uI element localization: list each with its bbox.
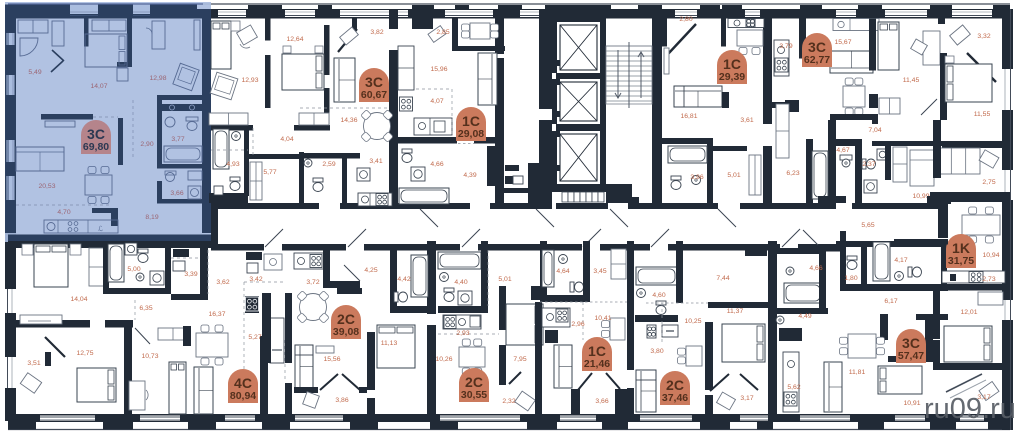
svg-text:4,40: 4,40 xyxy=(454,279,467,286)
svg-text:69,80: 69,80 xyxy=(83,141,109,153)
svg-text:1K: 1K xyxy=(952,240,970,256)
svg-text:4,70: 4,70 xyxy=(57,209,70,216)
svg-text:2,85: 2,85 xyxy=(436,29,449,36)
svg-text:5,49: 5,49 xyxy=(28,69,41,76)
svg-text:10,91: 10,91 xyxy=(903,400,920,407)
svg-text:39,08: 39,08 xyxy=(333,326,359,338)
svg-text:2C: 2C xyxy=(337,311,355,327)
svg-text:4,42: 4,42 xyxy=(397,276,410,283)
svg-text:7,44: 7,44 xyxy=(716,275,729,282)
svg-text:11,37: 11,37 xyxy=(727,308,744,315)
svg-text:3,32: 3,32 xyxy=(977,33,990,40)
svg-text:2,90: 2,90 xyxy=(140,141,153,148)
svg-text:12,75: 12,75 xyxy=(76,350,93,357)
svg-text:11,55: 11,55 xyxy=(974,111,991,118)
svg-text:4,93: 4,93 xyxy=(226,161,239,168)
svg-text:3,61: 3,61 xyxy=(740,117,753,124)
svg-text:3,79: 3,79 xyxy=(779,43,792,50)
svg-text:5,62: 5,62 xyxy=(787,384,800,391)
svg-text:29,39: 29,39 xyxy=(719,71,745,83)
svg-text:15,96: 15,96 xyxy=(430,66,447,73)
svg-text:10,25: 10,25 xyxy=(684,318,701,325)
svg-text:6,17: 6,17 xyxy=(884,298,897,305)
svg-text:1,80: 1,80 xyxy=(844,275,857,282)
svg-text:30,55: 30,55 xyxy=(461,389,487,401)
svg-text:2,96: 2,96 xyxy=(571,321,584,328)
svg-text:31,75: 31,75 xyxy=(948,255,974,267)
svg-text:11,13: 11,13 xyxy=(381,340,398,347)
svg-text:3,96: 3,96 xyxy=(690,174,703,181)
svg-text:1C: 1C xyxy=(462,113,480,129)
svg-text:6,35: 6,35 xyxy=(139,305,152,312)
svg-text:5,01: 5,01 xyxy=(727,172,740,179)
svg-text:10,73: 10,73 xyxy=(141,353,158,360)
svg-text:5,00: 5,00 xyxy=(127,266,140,273)
svg-text:2,75: 2,75 xyxy=(982,179,995,186)
svg-text:3,72: 3,72 xyxy=(306,279,319,286)
svg-text:3,42: 3,42 xyxy=(249,276,262,283)
svg-text:2,80: 2,80 xyxy=(679,16,692,23)
svg-text:15,67: 15,67 xyxy=(834,39,851,46)
svg-text:16,81: 16,81 xyxy=(680,113,697,120)
svg-text:5,01: 5,01 xyxy=(498,276,511,283)
svg-text:4,25: 4,25 xyxy=(364,267,377,274)
svg-text:3C: 3C xyxy=(808,39,826,55)
svg-text:10,41: 10,41 xyxy=(594,315,611,322)
svg-text:6,23: 6,23 xyxy=(786,170,799,177)
svg-text:57,47: 57,47 xyxy=(898,350,924,362)
svg-text:14,07: 14,07 xyxy=(90,83,107,90)
svg-text:4,17: 4,17 xyxy=(894,257,907,264)
svg-text:62,77: 62,77 xyxy=(804,54,830,66)
svg-text:8,19: 8,19 xyxy=(145,214,158,221)
svg-text:3,41: 3,41 xyxy=(369,158,382,165)
svg-text:29,08: 29,08 xyxy=(458,128,484,140)
svg-text:11,45: 11,45 xyxy=(903,77,920,84)
svg-text:4,49: 4,49 xyxy=(798,313,811,320)
svg-text:2C: 2C xyxy=(465,374,483,390)
svg-text:4,66: 4,66 xyxy=(430,161,443,168)
svg-text:11,81: 11,81 xyxy=(849,369,866,376)
svg-text:3,62: 3,62 xyxy=(216,279,229,286)
svg-text:2,73: 2,73 xyxy=(982,276,995,283)
svg-text:3,45: 3,45 xyxy=(593,268,606,275)
svg-text:80,94: 80,94 xyxy=(230,390,256,402)
svg-text:3,86: 3,86 xyxy=(335,397,348,404)
svg-text:1C: 1C xyxy=(723,56,741,72)
svg-text:7,95: 7,95 xyxy=(513,356,526,363)
svg-text:3C: 3C xyxy=(87,126,105,142)
svg-text:3C: 3C xyxy=(365,74,383,90)
svg-text:3,66: 3,66 xyxy=(595,398,608,405)
svg-text:2,59: 2,59 xyxy=(322,161,335,168)
svg-text:12,93: 12,93 xyxy=(241,77,258,84)
svg-text:16,37: 16,37 xyxy=(208,311,225,318)
svg-text:10,26: 10,26 xyxy=(435,356,452,363)
svg-text:3C: 3C xyxy=(902,335,920,351)
svg-text:3,66: 3,66 xyxy=(170,190,183,197)
svg-text:7,04: 7,04 xyxy=(868,127,881,134)
svg-text:37,46: 37,46 xyxy=(662,392,688,404)
svg-text:3,39: 3,39 xyxy=(184,271,197,278)
svg-text:4,39: 4,39 xyxy=(463,172,476,179)
svg-text:14,36: 14,36 xyxy=(340,117,357,124)
svg-text:4,67: 4,67 xyxy=(836,147,849,154)
svg-text:3,77: 3,77 xyxy=(171,136,184,143)
svg-text:4,66: 4,66 xyxy=(809,265,822,272)
svg-text:4,07: 4,07 xyxy=(430,98,443,105)
svg-text:3,17: 3,17 xyxy=(740,395,753,402)
svg-text:20,53: 20,53 xyxy=(38,183,55,190)
svg-text:5,65: 5,65 xyxy=(861,222,874,229)
svg-text:3,80: 3,80 xyxy=(650,348,663,355)
svg-text:15,56: 15,56 xyxy=(323,356,340,363)
svg-text:14,04: 14,04 xyxy=(70,296,87,303)
svg-text:5,77: 5,77 xyxy=(263,169,276,176)
svg-text:ru09.ru: ru09.ru xyxy=(924,393,1016,425)
svg-text:4C: 4C xyxy=(234,375,252,391)
svg-text:12,64: 12,64 xyxy=(286,36,303,43)
svg-text:5,27: 5,27 xyxy=(248,334,261,341)
svg-text:4,60: 4,60 xyxy=(652,292,665,299)
svg-text:10,94: 10,94 xyxy=(982,252,999,259)
svg-text:2,32: 2,32 xyxy=(502,398,515,405)
svg-text:4,04: 4,04 xyxy=(280,136,293,143)
svg-text:3,82: 3,82 xyxy=(370,29,383,36)
svg-text:2,37: 2,37 xyxy=(862,161,875,168)
svg-text:1C: 1C xyxy=(588,343,606,359)
svg-text:ℒ: ℒ xyxy=(98,225,103,233)
svg-text:2C: 2C xyxy=(666,377,684,393)
svg-text:60,67: 60,67 xyxy=(361,89,387,101)
svg-text:21,46: 21,46 xyxy=(584,358,610,370)
svg-text:4,64: 4,64 xyxy=(556,268,569,275)
svg-text:2,93: 2,93 xyxy=(456,330,469,337)
svg-text:3,51: 3,51 xyxy=(27,360,40,367)
svg-text:12,01: 12,01 xyxy=(960,309,977,316)
svg-text:12,98: 12,98 xyxy=(149,75,166,82)
